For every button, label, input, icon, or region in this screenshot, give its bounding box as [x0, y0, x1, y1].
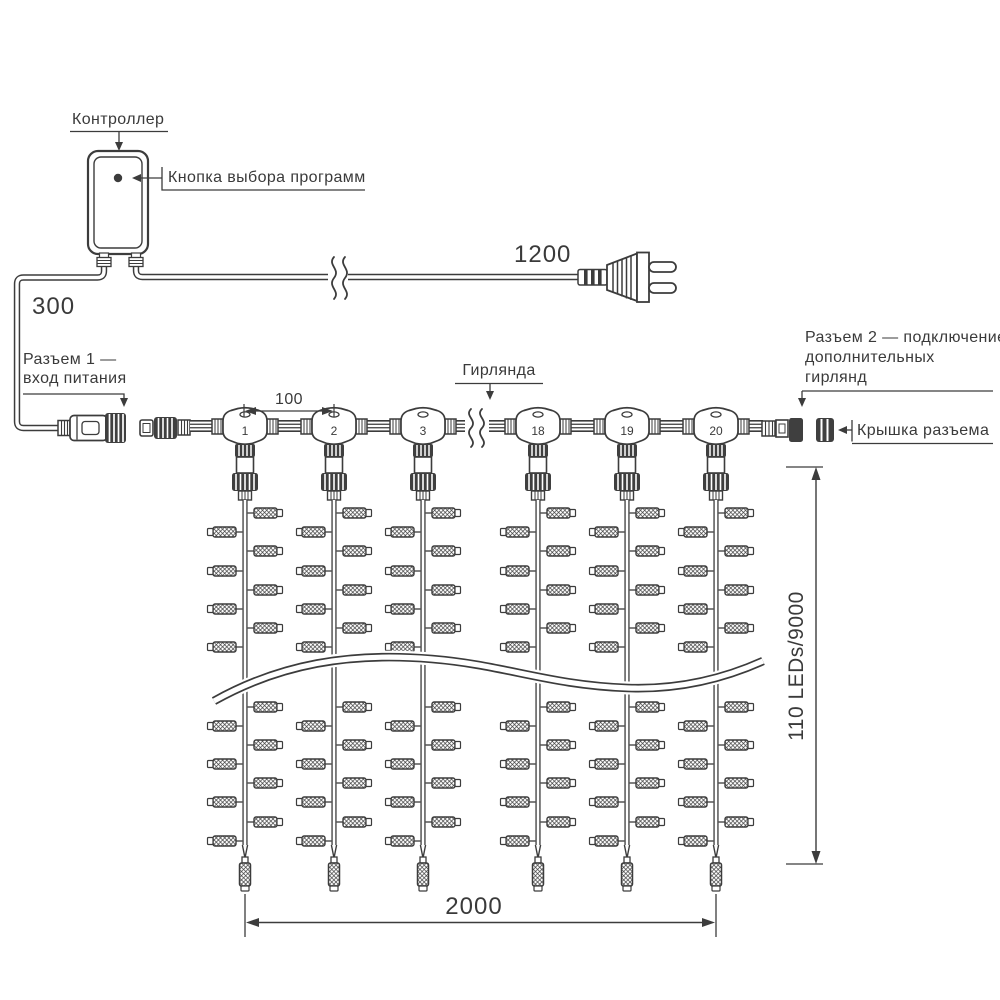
drop-number: 2: [322, 424, 346, 438]
connector-cap: [816, 418, 834, 442]
connector1-label-line2: вход питания: [23, 369, 127, 389]
connector2-label-line1: Разъем 2 — подключение: [805, 328, 1000, 348]
connector2-end: [762, 418, 803, 442]
cross-cable: [214, 657, 763, 701]
diagram-artwork: [0, 0, 1000, 1000]
connector1-male-plug: [58, 413, 126, 443]
led-drops: [208, 408, 754, 891]
drop-number: 3: [411, 424, 435, 438]
mains-plug-icon: [578, 253, 676, 303]
wiring-diagram: Контроллер Кнопка выбора программ 300 12…: [0, 0, 1000, 1000]
dimension-300: 300: [32, 292, 75, 322]
connector2-label-line3: гирлянд: [805, 368, 867, 388]
connector1-label-line1: Разъем 1 —: [23, 350, 117, 370]
program-button-dot: [114, 174, 122, 182]
program-button-label: Кнопка выбора программ: [168, 168, 366, 188]
plug-prong: [649, 283, 676, 293]
drop-number: 19: [615, 424, 639, 438]
controller-label: Контроллер: [72, 110, 164, 130]
connector1-female-socket: [140, 417, 190, 439]
cable-break-icon: [469, 409, 473, 447]
connector-cap-label: Крышка разъема: [857, 421, 989, 441]
dimension-1200: 1200: [514, 240, 571, 270]
dimension-100: 100: [259, 390, 319, 410]
cord-break-icon: [332, 257, 336, 299]
garland-label: Гирлянда: [449, 361, 549, 381]
connector2-label-line2: дополнительных: [805, 348, 935, 368]
dimension-height: 110 LEDs/9000: [785, 566, 809, 766]
drop-number: 20: [704, 424, 728, 438]
controller-box: [88, 151, 148, 267]
dimension-2000: 2000: [424, 892, 524, 922]
drop-number: 1: [233, 424, 257, 438]
plug-prong: [649, 262, 676, 272]
drop-number: 18: [526, 424, 550, 438]
